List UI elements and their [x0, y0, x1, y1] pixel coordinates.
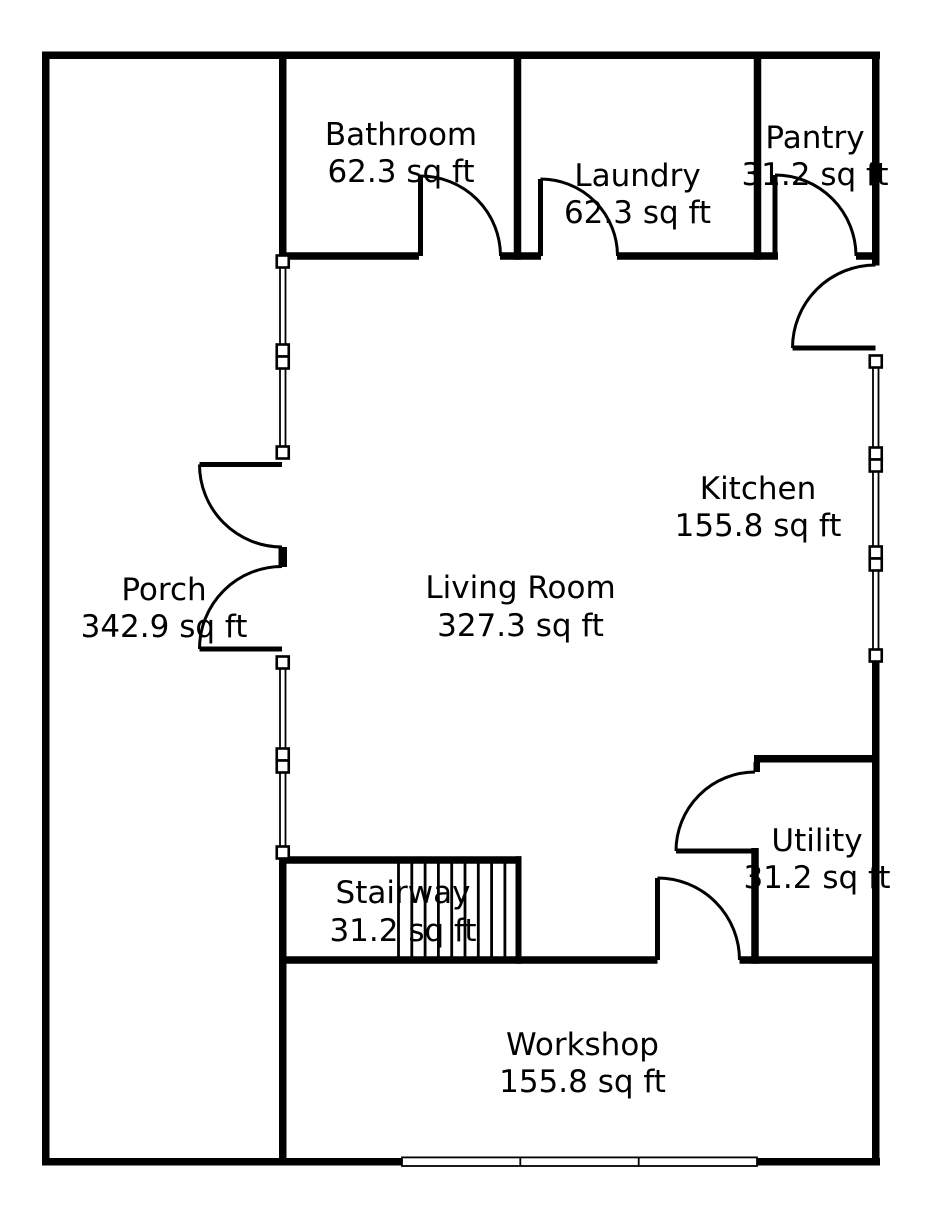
wall-outer-right-lower	[872, 661, 880, 1166]
room-name: Workshop	[506, 1027, 659, 1063]
room-labels: Bathroom 62.3 sq ft Laundry 62.3 sq ft P…	[81, 117, 891, 1100]
wall-utility-jamb	[754, 762, 761, 772]
room-area: 342.9 sq ft	[81, 609, 248, 645]
window-mullion	[870, 448, 882, 460]
window-mullion	[277, 357, 289, 369]
room-name: Stairway	[336, 875, 471, 911]
door-swing-arc	[676, 772, 755, 851]
room-area: 155.8 sq ft	[499, 1064, 666, 1100]
room-label-bathroom: Bathroom 62.3 sq ft	[325, 117, 477, 190]
room-name: Utility	[771, 823, 862, 859]
utility-door	[676, 772, 755, 851]
room-name: Bathroom	[325, 117, 477, 153]
room-name: Kitchen	[700, 471, 817, 507]
floor-plan: Bathroom 62.3 sq ft Laundry 62.3 sq ft P…	[0, 0, 930, 1216]
kitchen-window	[870, 356, 882, 662]
wall-porch-lower	[279, 855, 287, 1166]
door-meeting-astragal	[279, 547, 288, 567]
room-label-pantry: Pantry 31.2 sq ft	[741, 120, 888, 193]
window-mullion	[870, 460, 882, 472]
window-mullion	[277, 447, 289, 459]
wall-laundry-pantry-divider	[754, 52, 762, 260]
room-label-living-room: Living Room 327.3 sq ft	[425, 570, 615, 644]
wall-toprooms-a	[279, 252, 419, 260]
room-label-laundry: Laundry 62.3 sq ft	[564, 158, 711, 231]
room-name: Laundry	[574, 158, 700, 194]
room-area: 31.2 sq ft	[743, 860, 890, 896]
wall-outer-left	[42, 52, 50, 1166]
window-mullion	[277, 345, 289, 357]
room-name: Living Room	[425, 570, 615, 606]
window-mullion	[277, 256, 289, 268]
wall-porch-upper	[279, 52, 287, 263]
room-name: Porch	[121, 572, 206, 608]
workshop-window	[402, 1157, 757, 1166]
door-swing-arc-upper	[200, 465, 283, 548]
wall-workshop-a	[279, 956, 658, 964]
room-area: 62.3 sq ft	[564, 195, 711, 231]
door-swing-arc	[793, 265, 876, 348]
porch-window-lower	[277, 657, 289, 859]
porch-window-upper	[277, 256, 289, 459]
room-label-stairway: Stairway 31.2 sq ft	[329, 875, 476, 949]
kitchen-exterior-door	[793, 265, 876, 348]
window-mullion	[870, 547, 882, 559]
window-frame	[402, 1157, 757, 1166]
room-area: 31.2 sq ft	[329, 913, 476, 949]
room-label-kitchen: Kitchen 155.8 sq ft	[675, 471, 842, 544]
door-swing-arc	[658, 878, 740, 960]
wall-stairway-right	[516, 856, 522, 964]
room-area: 155.8 sq ft	[675, 508, 842, 544]
room-label-porch: Porch 342.9 sq ft	[81, 572, 248, 645]
window-mullion	[870, 356, 882, 368]
wall-stairway-top	[279, 856, 522, 864]
floor-plan-canvas: Bathroom 62.3 sq ft Laundry 62.3 sq ft P…	[0, 0, 930, 1216]
room-label-workshop: Workshop 155.8 sq ft	[499, 1027, 666, 1100]
wall-utility-top	[754, 755, 880, 763]
window-mullion	[870, 559, 882, 571]
window-mullion	[870, 650, 882, 662]
window-mullion	[277, 749, 289, 761]
room-label-utility: Utility 31.2 sq ft	[743, 823, 890, 896]
window-mullion	[277, 761, 289, 773]
wall-workshop-b	[740, 956, 880, 964]
workshop-door	[658, 878, 740, 960]
room-area: 327.3 sq ft	[437, 608, 604, 644]
wall-toprooms-d	[856, 252, 880, 260]
room-area: 62.3 sq ft	[327, 154, 474, 190]
window-mullion	[277, 847, 289, 859]
wall-bathroom-laundry-divider	[514, 52, 522, 260]
room-name: Pantry	[765, 120, 864, 156]
room-area: 31.2 sq ft	[741, 157, 888, 193]
window-mullion	[277, 657, 289, 669]
